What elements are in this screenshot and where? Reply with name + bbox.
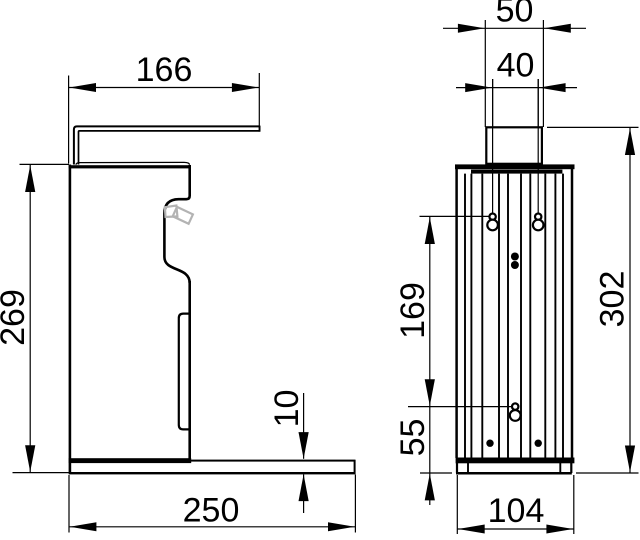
svg-text:55: 55 bbox=[394, 419, 432, 457]
svg-text:269: 269 bbox=[0, 289, 32, 346]
svg-text:302: 302 bbox=[594, 271, 632, 328]
svg-text:104: 104 bbox=[488, 492, 545, 530]
svg-text:250: 250 bbox=[183, 492, 240, 530]
svg-text:40: 40 bbox=[497, 47, 535, 85]
svg-text:10: 10 bbox=[268, 390, 306, 428]
svg-text:50: 50 bbox=[496, 0, 534, 30]
svg-text:166: 166 bbox=[136, 51, 193, 89]
svg-text:169: 169 bbox=[394, 282, 432, 339]
